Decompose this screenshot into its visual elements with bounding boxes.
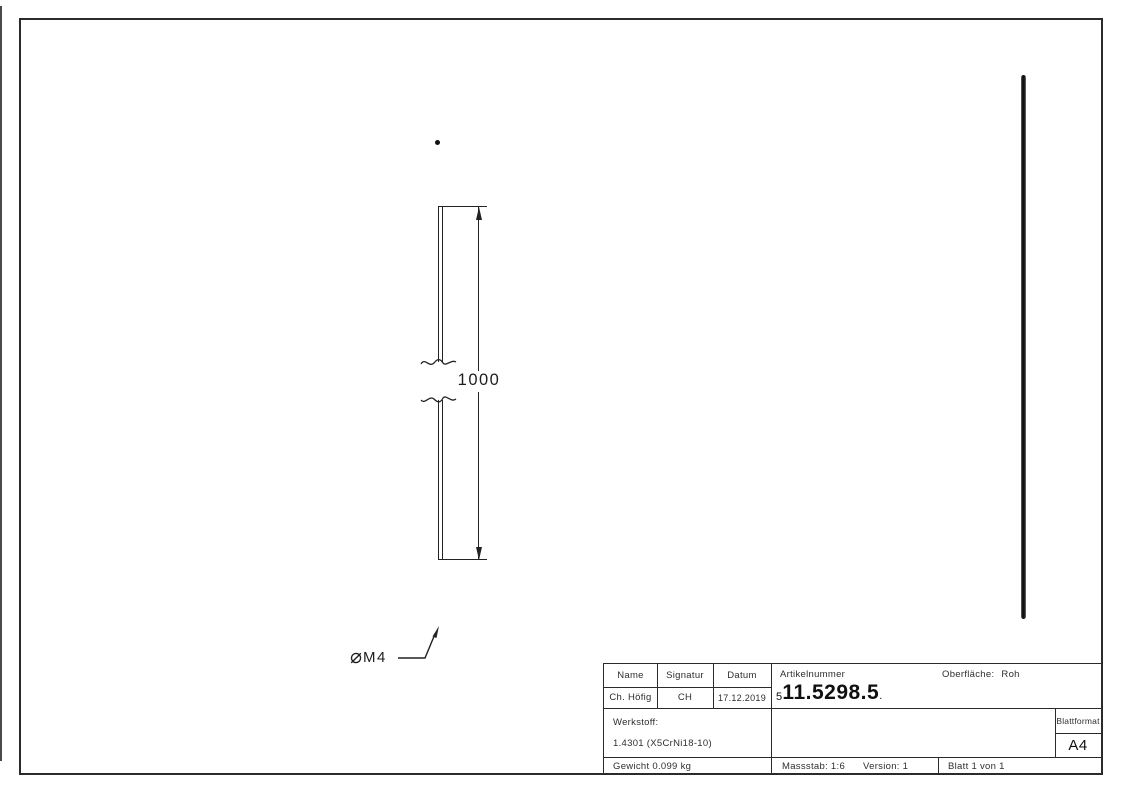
arrow-up-icon (476, 207, 482, 220)
thread-label: M4 (363, 649, 387, 666)
header-datum: Datum (713, 664, 771, 687)
rod-top-view-dot (435, 140, 440, 145)
thread-callout: ⌀M4 (350, 644, 387, 669)
werkstoff-label: Werkstoff: (613, 717, 658, 728)
value-signatur: CH (657, 687, 713, 708)
artikelnummer-suffix: . (879, 690, 882, 702)
rod-front-view-lower (438, 400, 443, 560)
drawing-sheet: 1000 ⌀M4 Name Signatur Datum Ch. Höfig C… (0, 0, 1123, 794)
version: Version: 1 (863, 760, 908, 773)
drawing-frame (19, 18, 1103, 775)
arrow-down-icon (476, 547, 482, 560)
leader-arrow-icon (433, 626, 440, 638)
leader-line (395, 622, 447, 664)
dimension-line (478, 207, 479, 371)
blattformat-value: A4 (1055, 733, 1101, 757)
break-line-icon (419, 355, 459, 369)
value-datum: 17.12.2019 (713, 687, 771, 708)
massstab: Massstab: 1:6 (782, 760, 845, 773)
break-line-icon (419, 393, 459, 407)
oberflaeche: Oberfläche:Roh (942, 669, 1020, 680)
artikelnummer-label: Artikelnummer (780, 669, 845, 680)
header-name: Name (604, 664, 657, 687)
title-block: Name Signatur Datum Ch. Höfig CH 17.12.2… (603, 663, 1103, 775)
artikelnummer-value: 511.5298.5. (776, 681, 883, 705)
werkstoff-value: 1.4301 (X5CrNi18-10) (613, 738, 712, 749)
rod-front-view-upper (438, 207, 443, 362)
blattformat-label: Blattformat (1055, 708, 1101, 733)
artikelnummer-main: 11.5298.5 (782, 681, 879, 704)
oberflaeche-value: Roh (1001, 669, 1019, 680)
dimension-line (478, 392, 479, 560)
blatt: Blatt 1 von 1 (948, 760, 1005, 773)
rod-rendered-view (1021, 75, 1026, 619)
value-name: Ch. Höfig (604, 687, 657, 708)
header-signatur: Signatur (657, 664, 713, 687)
oberflaeche-label: Oberfläche: (942, 669, 994, 680)
page-left-edge (0, 6, 2, 761)
dimension-value: 1000 (441, 371, 517, 390)
diameter-icon: ⌀ (350, 646, 363, 668)
gewicht: Gewicht 0.099 kg (613, 760, 691, 773)
